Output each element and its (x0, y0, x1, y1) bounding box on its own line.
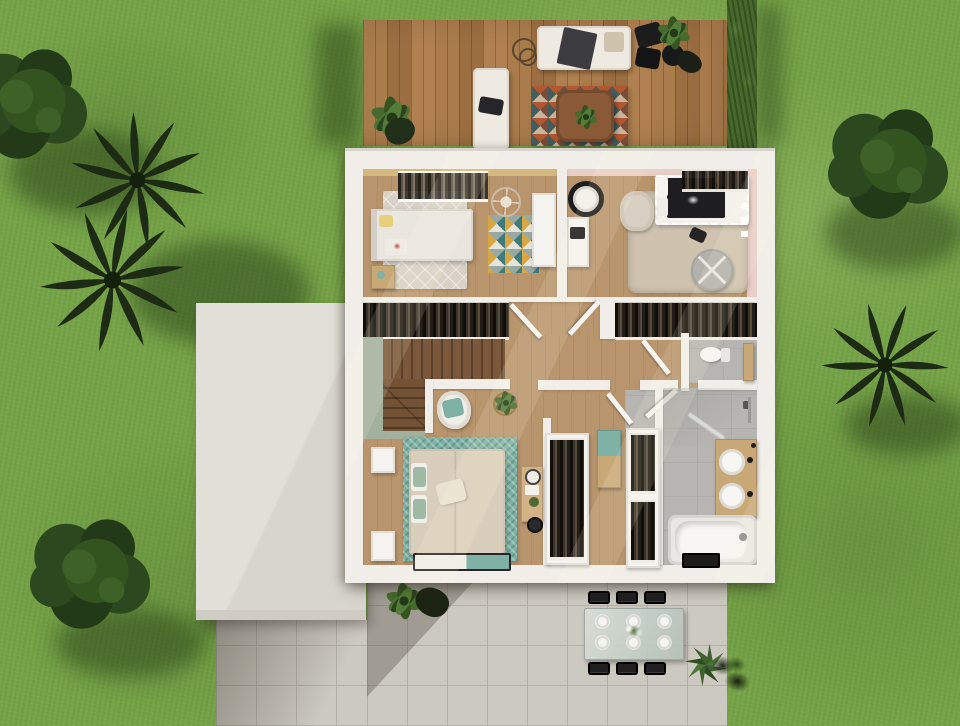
patio-side (216, 620, 367, 726)
sofa-cushion (604, 32, 624, 52)
armchair (620, 191, 654, 231)
dresser (532, 193, 556, 267)
bath-mat (682, 553, 720, 568)
patio (367, 580, 727, 726)
wc-shelf (743, 343, 754, 381)
wall-sconce (751, 443, 756, 448)
dining-chair (588, 662, 610, 675)
stair-wall (363, 337, 383, 433)
dining-chair-row-top (588, 591, 666, 604)
desk-papers (525, 485, 539, 495)
clothes-rack (682, 169, 748, 192)
table-centerpiece (621, 622, 647, 640)
laptop (570, 227, 585, 239)
garage-roof (196, 303, 366, 620)
bush-tree (808, 88, 960, 238)
desk-clock (525, 469, 541, 485)
bed-blanket-art (385, 239, 407, 255)
wardrobe-unit (545, 433, 589, 565)
faucet (747, 457, 753, 463)
open-wardrobe-rack (398, 171, 488, 202)
wall (538, 380, 610, 390)
stair-flight-lower (383, 379, 425, 433)
toilet-bowl (700, 347, 722, 362)
dining-chair (616, 591, 638, 604)
floor-plan-render (0, 0, 960, 726)
foot-bench (413, 553, 511, 571)
bed-headboard (371, 209, 377, 261)
place-setting (596, 615, 609, 628)
nightstand (371, 447, 395, 473)
decor-item (377, 271, 385, 279)
wardrobe-clothes (631, 433, 655, 494)
faucet (747, 491, 753, 497)
shower-zone (663, 388, 757, 446)
sink (719, 483, 745, 509)
wall (681, 333, 689, 391)
wardrobe-unit (626, 428, 660, 568)
sage-pillow (413, 467, 426, 487)
round-pouf (691, 249, 733, 291)
shower-rail (748, 397, 751, 423)
wall (600, 299, 615, 339)
wall (557, 169, 567, 301)
toilet-tank (721, 348, 730, 362)
round-wire-chair (491, 187, 521, 217)
desk-plant (529, 497, 539, 507)
dining-chair-row-bottom (588, 662, 666, 675)
sink (719, 449, 745, 475)
wardrobe-clothes (631, 500, 655, 563)
nightstand (371, 531, 395, 561)
stair-flight-top (383, 339, 505, 379)
desk (567, 217, 589, 267)
wire-side-table (519, 48, 537, 66)
floor-plan-body (345, 148, 775, 583)
dining-chair (588, 591, 610, 604)
wall (425, 379, 433, 433)
pendant-lamp (568, 181, 604, 217)
dining-chair (616, 662, 638, 675)
wall (363, 297, 757, 302)
desk-chair (527, 517, 543, 533)
hedge-shadow (757, 4, 781, 144)
deck-shadow (316, 24, 362, 146)
tub-faucet (739, 533, 747, 541)
hall-closet-left (363, 301, 509, 340)
building-shadow (216, 620, 367, 726)
bush-tree (10, 498, 170, 648)
hedge (727, 0, 757, 148)
table-plant (569, 102, 603, 132)
pillow (657, 198, 668, 216)
wall-shelf-items (741, 203, 748, 241)
basket-plant (491, 388, 521, 418)
dining-chair (644, 591, 666, 604)
place-setting (658, 636, 671, 649)
dining-chair (644, 662, 666, 675)
place-setting (658, 615, 671, 628)
sage-pillow (413, 499, 426, 519)
yellow-pillow (379, 215, 393, 227)
wardrobe-clothes (550, 438, 584, 560)
place-setting (596, 636, 609, 649)
terrace-deck (363, 20, 727, 146)
potted-plant (651, 12, 697, 54)
closet-bench (597, 430, 621, 488)
pillow (657, 178, 668, 196)
